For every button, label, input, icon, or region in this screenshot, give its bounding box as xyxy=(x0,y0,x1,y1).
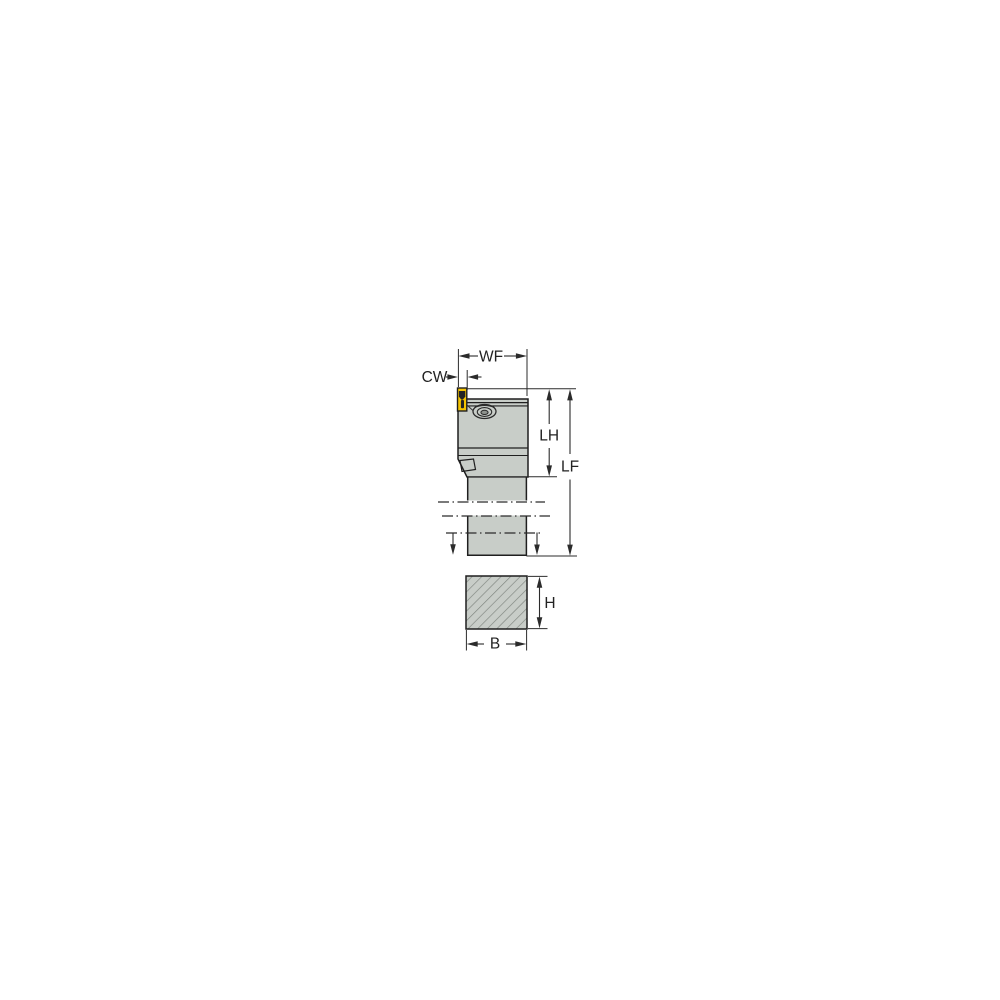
right-arrowhead xyxy=(516,353,527,359)
dimension-b: B xyxy=(466,630,526,653)
dim-label-lh: LH xyxy=(539,428,559,445)
dimension-lf: LF xyxy=(561,389,579,555)
dim-label-wf: WF xyxy=(479,349,503,366)
right-pointing-arrowhead xyxy=(447,374,458,379)
left-arrowhead xyxy=(458,353,469,359)
clamp-screw xyxy=(473,405,496,419)
down-arrowhead xyxy=(567,545,573,556)
down-arrowhead xyxy=(537,617,543,628)
technical-drawing: WF CW LH LF xyxy=(0,0,1000,1000)
cutting-insert xyxy=(458,388,467,411)
up-arrowhead xyxy=(546,389,552,400)
insert-tip-detail xyxy=(461,400,464,408)
dim-label-b: B xyxy=(490,636,500,653)
dimension-h: H xyxy=(528,576,556,628)
page-background: WF CW LH LF xyxy=(0,0,1000,1000)
dim-label-h: H xyxy=(544,595,555,612)
dim-label-cw: CW xyxy=(422,369,448,386)
cross-section-hatching xyxy=(466,576,527,629)
right-arrowhead xyxy=(515,641,526,647)
dimension-wf: WF xyxy=(458,349,527,366)
shank-cross-section: H B xyxy=(466,576,556,653)
dimension-lh: LH xyxy=(539,389,559,476)
left-pointing-arrowhead xyxy=(468,374,479,379)
down-arrowhead xyxy=(534,545,540,556)
down-arrowhead xyxy=(546,465,552,476)
shank-lower-fill xyxy=(467,516,527,556)
up-arrowhead xyxy=(537,577,543,588)
dim-label-lf: LF xyxy=(561,459,579,476)
up-arrowhead xyxy=(567,389,573,400)
tool-side-view xyxy=(438,388,550,556)
down-arrowhead xyxy=(450,544,456,555)
shank-upper-fill xyxy=(467,478,527,501)
dimension-cw: CW xyxy=(422,369,482,386)
clamp-screw-center xyxy=(481,410,488,414)
left-arrowhead xyxy=(467,641,478,647)
